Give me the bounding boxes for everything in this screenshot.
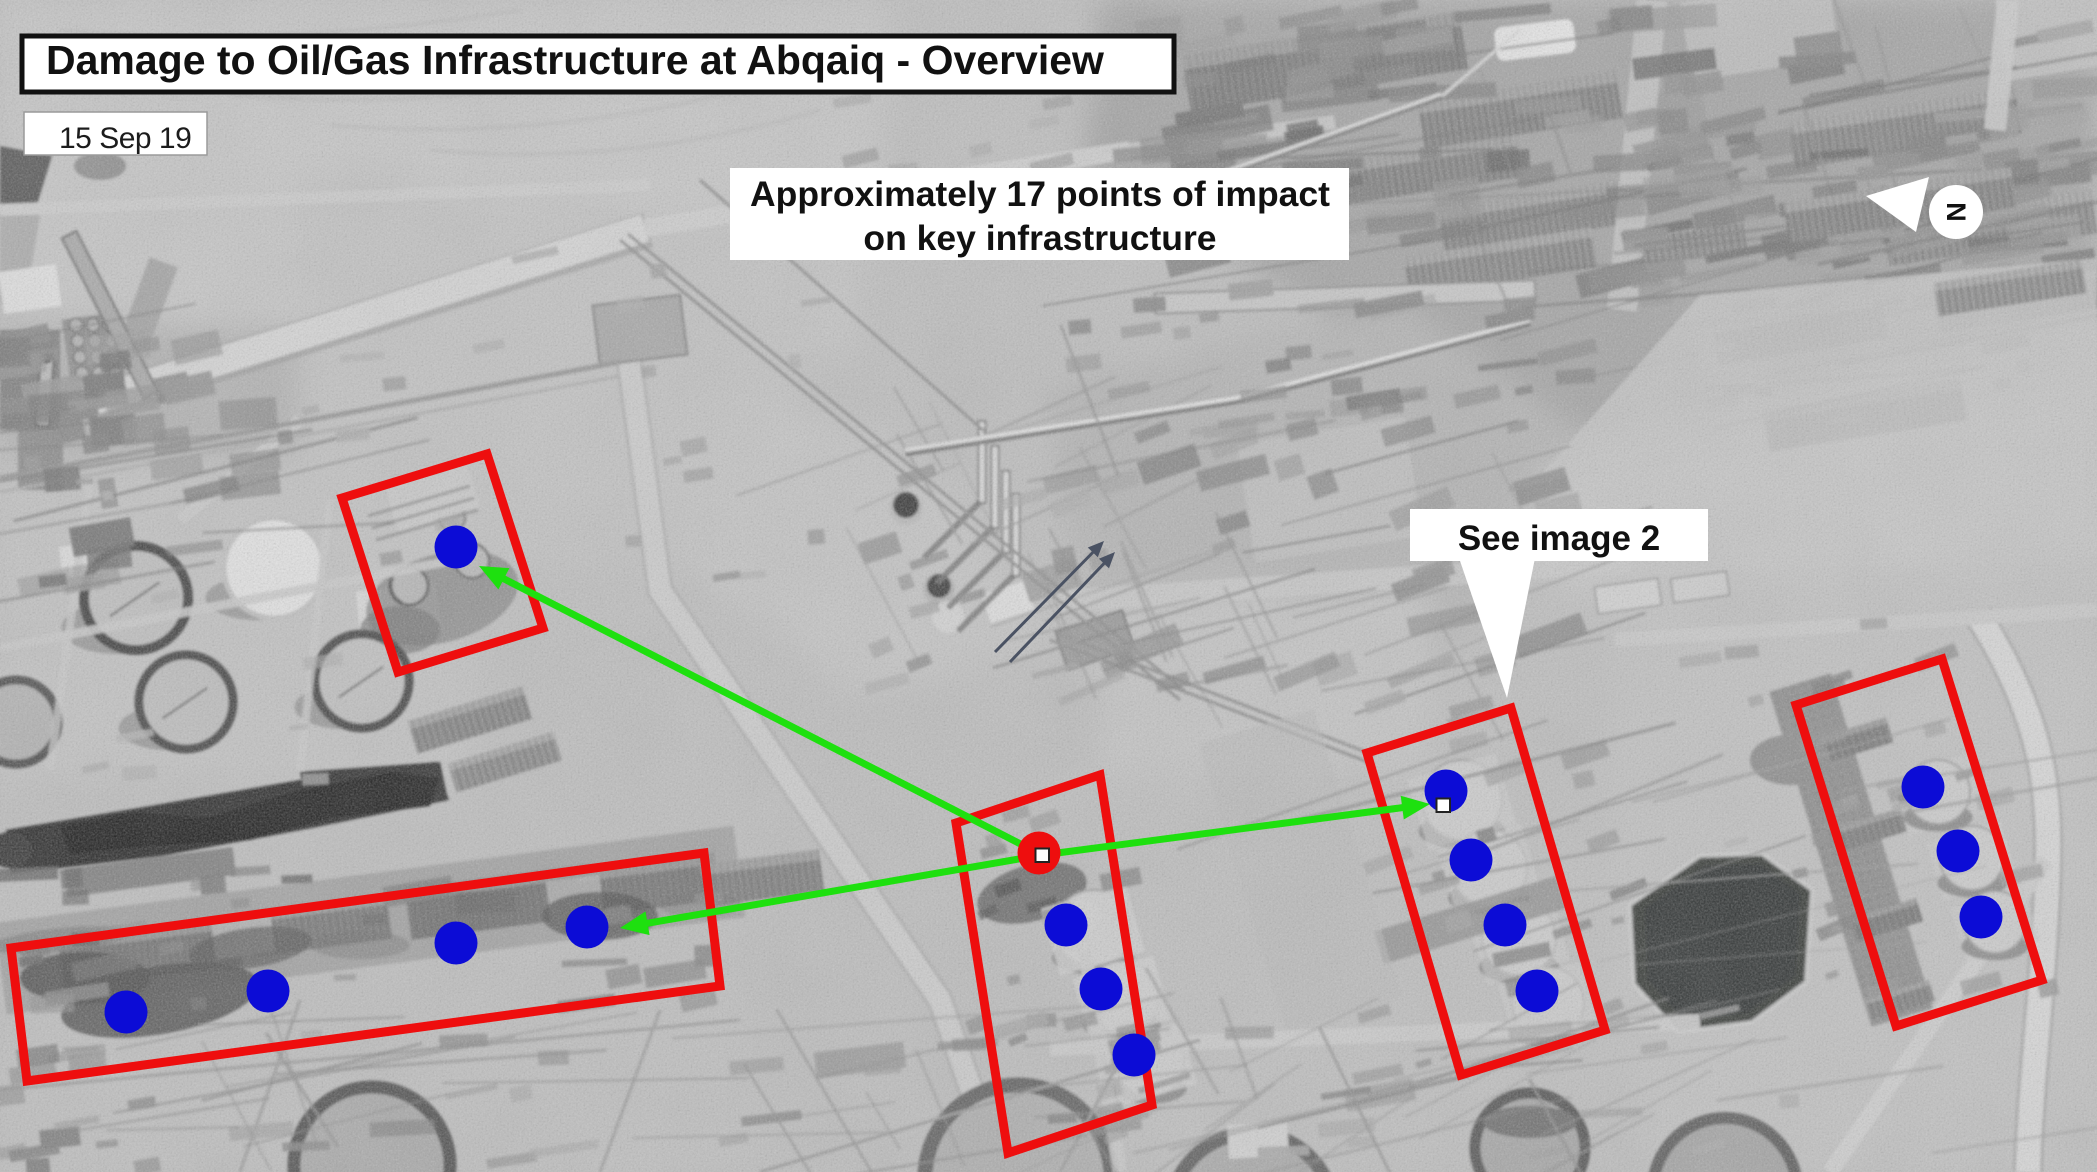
svg-text:Approximately 17 points of imp: Approximately 17 points of impact — [750, 174, 1330, 214]
svg-text:on key infrastructure: on key infrastructure — [863, 218, 1216, 258]
svg-text:15 Sep 19: 15 Sep 19 — [59, 122, 191, 155]
svg-text:Damage to Oil/Gas Infrastructu: Damage to Oil/Gas Infrastructure at Abqa… — [46, 37, 1104, 83]
svg-text:N: N — [1941, 202, 1971, 222]
svg-text:See image 2: See image 2 — [1458, 519, 1660, 558]
